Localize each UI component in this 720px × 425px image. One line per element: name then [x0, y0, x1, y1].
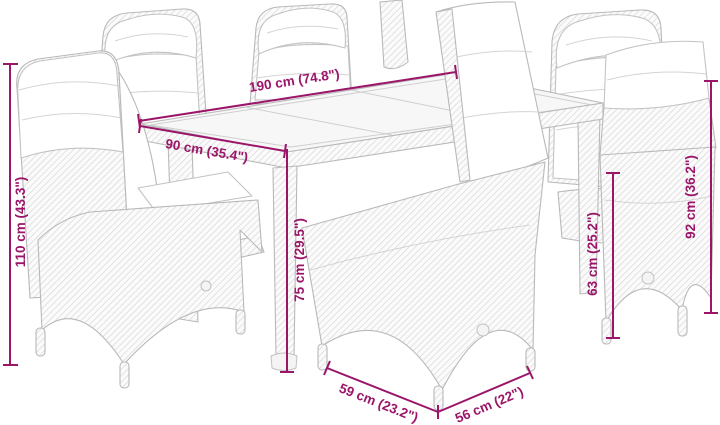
dimension-label-table-height: 75 cm (29.5"): [292, 218, 307, 302]
dimension-label-chair-width: 59 cm (23.2"): [337, 380, 420, 425]
dimension-label-seat-back-height: 63 cm (25.2"): [585, 212, 600, 296]
near-chair-right: [600, 41, 716, 344]
diagram-canvas: 190 cm (74.8") 90 cm (35.4") 110 cm (43.…: [0, 0, 720, 425]
dimension-chair-depth: 56 cm (22"): [438, 366, 533, 425]
dimension-chair-width: 59 cm (23.2"): [324, 361, 438, 425]
far-chair-edge: [380, 0, 408, 69]
dimension-label-left-chair-height: 110 cm (43.3"): [13, 177, 28, 267]
dimension-label-right-chair-height: 92 cm (36.2"): [683, 155, 698, 239]
product-dimension-diagram: 190 cm (74.8") 90 cm (35.4") 110 cm (43.…: [0, 0, 720, 425]
